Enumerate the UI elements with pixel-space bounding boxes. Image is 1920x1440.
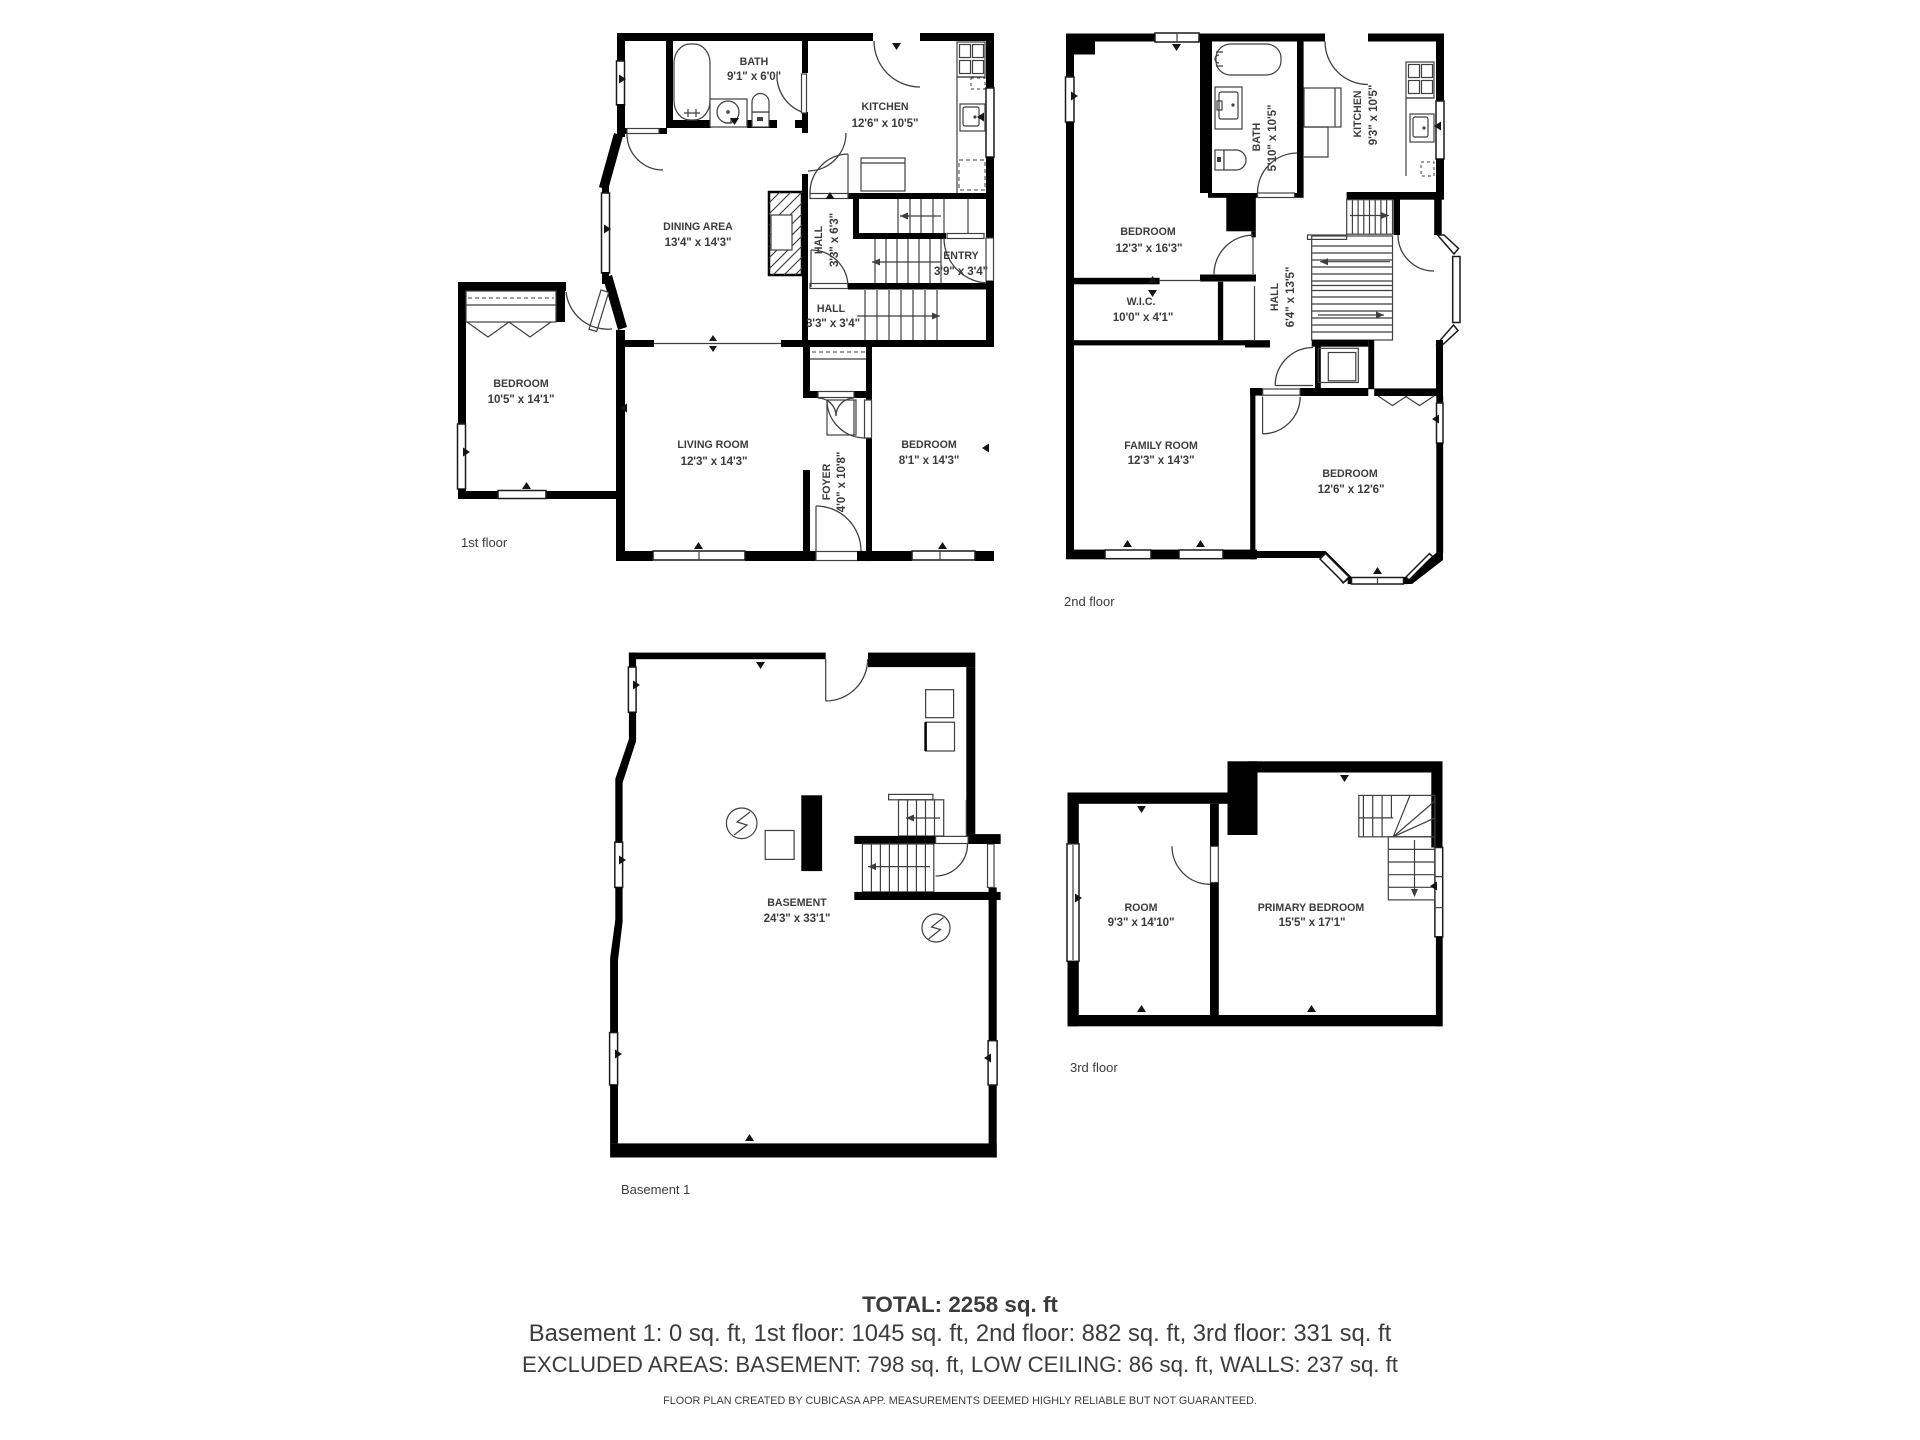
svg-text:2nd floor: 2nd floor xyxy=(1064,594,1115,609)
svg-text:HALL: HALL xyxy=(817,303,846,315)
svg-text:4'0" x 10'8": 4'0" x 10'8" xyxy=(835,452,848,512)
svg-text:BATH: BATH xyxy=(1251,123,1263,152)
svg-text:ROOM: ROOM xyxy=(1125,902,1158,914)
svg-text:BEDROOM: BEDROOM xyxy=(901,439,956,451)
svg-text:3'3" x 6'3": 3'3" x 6'3" xyxy=(828,213,841,267)
svg-text:6'4" x 13'5": 6'4" x 13'5" xyxy=(1284,267,1297,327)
svg-text:12'3" x 16'3": 12'3" x 16'3" xyxy=(1116,242,1183,255)
svg-text:BATH: BATH xyxy=(740,56,769,68)
svg-text:HALL: HALL xyxy=(813,225,825,254)
svg-text:24'3" x 33'1": 24'3" x 33'1" xyxy=(764,912,831,925)
svg-text:8'1" x 14'3": 8'1" x 14'3" xyxy=(899,454,959,467)
svg-text:FAMILY ROOM: FAMILY ROOM xyxy=(1124,440,1198,452)
svg-text:Basement 1: Basement 1 xyxy=(621,1182,690,1197)
svg-text:3'9" x 3'4": 3'9" x 3'4" xyxy=(934,265,988,278)
svg-text:FOYER: FOYER xyxy=(821,463,833,500)
svg-text:KITCHEN: KITCHEN xyxy=(861,101,908,113)
svg-text:12'3" x 14'3": 12'3" x 14'3" xyxy=(1128,454,1195,467)
svg-text:TOTAL: 2258 sq. ft: TOTAL: 2258 sq. ft xyxy=(862,1292,1058,1317)
svg-text:FLOOR PLAN CREATED BY CUBICASA: FLOOR PLAN CREATED BY CUBICASA APP. MEAS… xyxy=(663,1395,1257,1407)
svg-text:Basement 1: 0 sq. ft, 1st floo: Basement 1: 0 sq. ft, 1st floor: 1045 sq… xyxy=(529,1320,1392,1347)
svg-text:KITCHEN: KITCHEN xyxy=(1352,90,1364,137)
svg-text:BEDROOM: BEDROOM xyxy=(1120,226,1175,238)
svg-text:9'1" x 6'0": 9'1" x 6'0" xyxy=(727,70,781,83)
svg-text:W.I.C.: W.I.C. xyxy=(1127,296,1156,308)
svg-text:3rd floor: 3rd floor xyxy=(1070,1060,1118,1075)
svg-text:BASEMENT: BASEMENT xyxy=(767,897,827,909)
svg-text:PRIMARY BEDROOM: PRIMARY BEDROOM xyxy=(1258,902,1365,914)
svg-text:10'0" x 4'1": 10'0" x 4'1" xyxy=(1113,311,1173,324)
svg-text:LIVING ROOM: LIVING ROOM xyxy=(677,439,748,451)
svg-text:BEDROOM: BEDROOM xyxy=(493,378,548,390)
svg-text:HALL: HALL xyxy=(1269,282,1281,311)
svg-text:12'6" x 10'5": 12'6" x 10'5" xyxy=(852,117,919,130)
svg-text:9'3" x 14'10": 9'3" x 14'10" xyxy=(1108,916,1175,929)
svg-text:10'5" x 14'1": 10'5" x 14'1" xyxy=(488,393,555,406)
svg-text:EXCLUDED AREAS: BASEMENT: 798: EXCLUDED AREAS: BASEMENT: 798 sq. ft, LO… xyxy=(522,1352,1398,1377)
svg-text:BEDROOM: BEDROOM xyxy=(1322,468,1377,480)
svg-text:12'3" x 14'3": 12'3" x 14'3" xyxy=(681,455,748,468)
svg-text:9'3" x 10'5": 9'3" x 10'5" xyxy=(1367,85,1380,145)
svg-text:5'10" x 10'5": 5'10" x 10'5" xyxy=(1266,105,1279,172)
svg-text:15'5" x 17'1": 15'5" x 17'1" xyxy=(1279,916,1346,929)
svg-text:1st floor: 1st floor xyxy=(461,535,508,550)
svg-text:12'6" x 12'6": 12'6" x 12'6" xyxy=(1318,483,1385,496)
svg-text:3'3" x 3'4": 3'3" x 3'4" xyxy=(806,317,860,330)
svg-text:ENTRY: ENTRY xyxy=(943,250,979,262)
svg-text:13'4" x 14'3": 13'4" x 14'3" xyxy=(665,236,732,249)
svg-text:DINING AREA: DINING AREA xyxy=(663,221,733,233)
